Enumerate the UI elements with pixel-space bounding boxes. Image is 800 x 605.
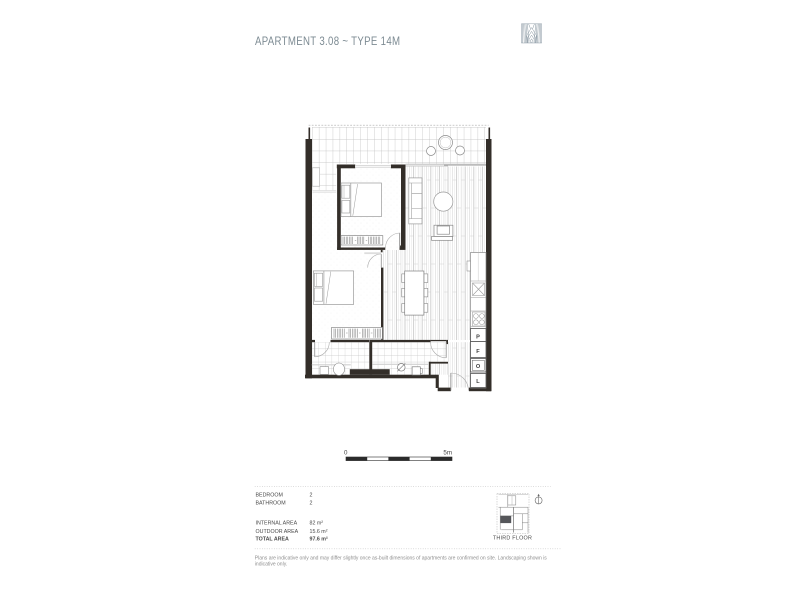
svg-text:APARTMENT 3.08 ~ TYPE 14M: APARTMENT 3.08 ~ TYPE 14M <box>255 35 400 48</box>
svg-text:TOTAL AREA: TOTAL AREA <box>256 536 290 542</box>
svg-text:0: 0 <box>344 450 348 457</box>
svg-text:15.6 m²: 15.6 m² <box>310 529 328 535</box>
svg-text:BATHROOM: BATHROOM <box>256 500 286 506</box>
svg-text:L: L <box>476 379 480 385</box>
svg-text:97.6 m²: 97.6 m² <box>310 536 328 542</box>
svg-text:O: O <box>476 364 481 370</box>
svg-text:F: F <box>476 349 480 355</box>
svg-text:2: 2 <box>310 500 313 506</box>
svg-text:Plans are indicative only and: Plans are indicative only and may differ… <box>255 555 548 561</box>
svg-text:P: P <box>476 335 480 341</box>
svg-text:82 m²: 82 m² <box>310 521 324 527</box>
svg-text:2: 2 <box>310 493 313 499</box>
svg-text:OUTDOOR AREA: OUTDOOR AREA <box>256 529 299 535</box>
svg-text:INTERNAL AREA: INTERNAL AREA <box>256 521 298 527</box>
svg-text:indicative only.: indicative only. <box>255 562 287 568</box>
svg-text:THIRD FLOOR: THIRD FLOOR <box>493 536 532 542</box>
svg-text:5m: 5m <box>443 450 452 457</box>
svg-text:BEDROOM: BEDROOM <box>256 493 283 499</box>
